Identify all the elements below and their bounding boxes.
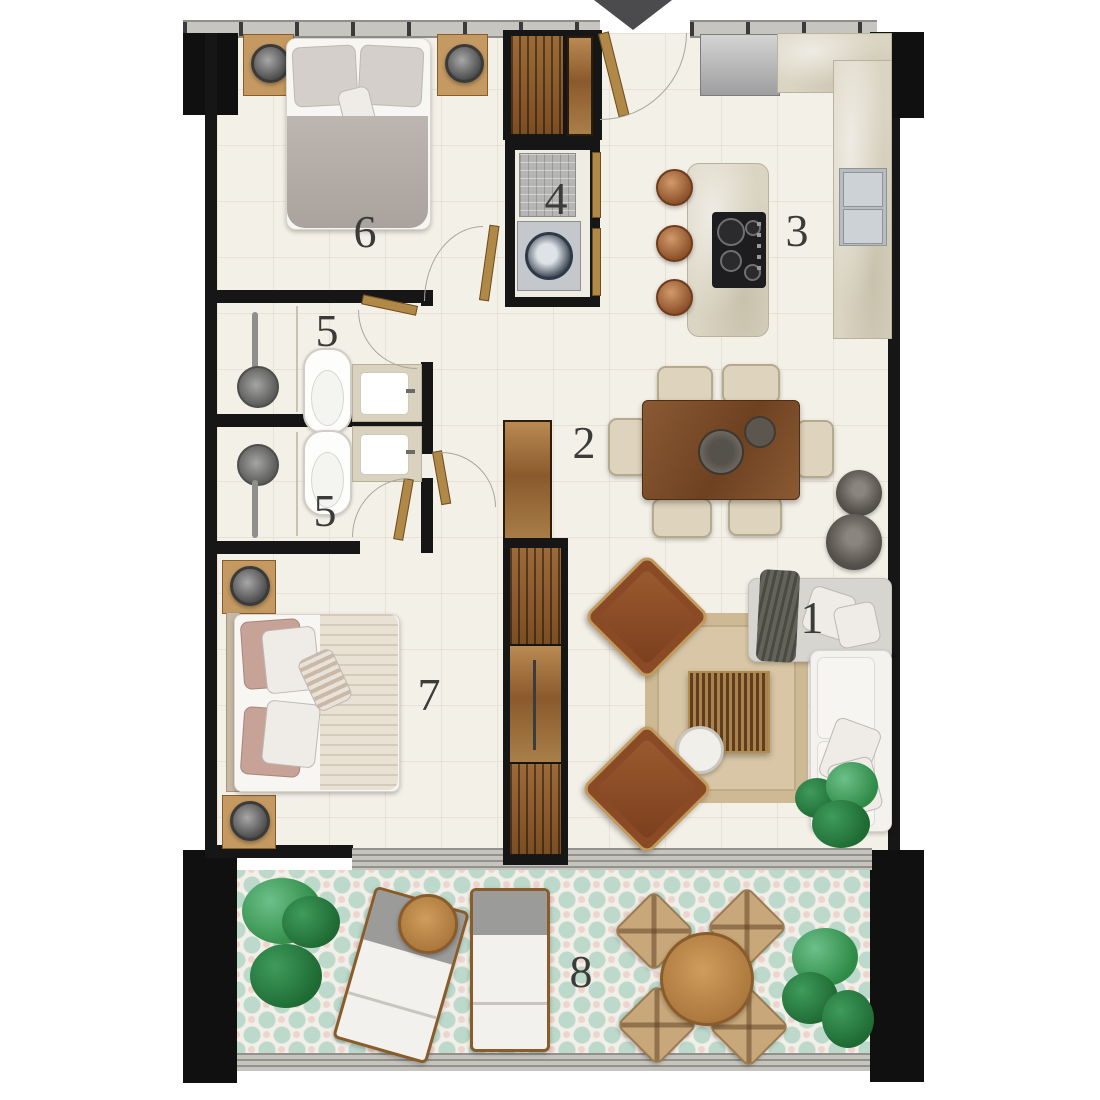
room-label-terrace: 8 — [570, 949, 593, 995]
lounger-headrest — [473, 891, 547, 935]
wall-bath-right-lower — [421, 478, 433, 553]
shower-partition — [296, 306, 298, 412]
burner-icon — [717, 218, 745, 246]
wardrobe-handle — [533, 660, 536, 750]
lounger-fold — [473, 1002, 547, 1005]
lamp-icon — [251, 44, 290, 83]
wall-bedroom7-top — [205, 541, 360, 554]
room-label-hall: 2 — [573, 420, 596, 466]
sink-basin-2 — [843, 209, 883, 244]
sun-lounger — [470, 888, 550, 1052]
room-label-living: 1 — [801, 595, 824, 641]
burner-icon — [720, 250, 742, 272]
shower-rail — [252, 312, 258, 370]
lamp-icon — [230, 801, 270, 841]
wardrobe-hanging-top — [510, 548, 561, 644]
dining-chair — [728, 496, 782, 536]
entry-closet-hanging — [511, 36, 563, 134]
vanity — [352, 426, 422, 482]
shower-rail — [252, 480, 258, 538]
washer-door — [525, 232, 573, 280]
dining-chair — [796, 420, 834, 478]
wardrobe-hanging-bottom — [510, 764, 561, 854]
dining-table — [642, 400, 800, 500]
wall-left — [205, 33, 217, 853]
centerpiece-bowl — [698, 429, 744, 475]
floor-plan: 1 2 3 4 5 5 6 7 8 — [0, 0, 1100, 1100]
centerpiece-plate — [744, 416, 776, 448]
bar-stool — [656, 169, 693, 206]
wall-bath-right-upper — [421, 362, 433, 454]
laundry-slider-1 — [592, 152, 601, 218]
laundry-slider-2 — [592, 228, 601, 296]
terrace-rail — [237, 1053, 870, 1071]
toilet-bowl — [311, 370, 344, 426]
bar-stool — [656, 279, 693, 316]
room-label-bedroom-lower: 7 — [418, 672, 441, 718]
room-label-laundry: 4 — [545, 176, 568, 222]
room-label-kitchen: 3 — [786, 208, 809, 254]
shower-head-icon — [237, 366, 279, 408]
pouf — [826, 514, 882, 570]
lounger-fold — [348, 992, 437, 1020]
dining-chair — [652, 498, 712, 538]
basin — [360, 372, 409, 415]
bar-stool — [656, 225, 693, 262]
cooktop-controls — [757, 222, 761, 276]
sink-basin-1 — [843, 172, 883, 207]
lamp-icon — [230, 566, 270, 606]
plant — [250, 944, 322, 1008]
faucet-icon — [406, 389, 415, 393]
faucet-icon — [406, 450, 415, 454]
plant — [812, 800, 870, 848]
cooktop — [712, 212, 766, 288]
kitchen-sink — [839, 168, 887, 246]
shower-head-icon — [237, 444, 279, 486]
terrace-dining-table — [660, 932, 754, 1026]
column-bottom-right — [870, 850, 924, 1082]
plant — [282, 896, 340, 948]
dining-chair — [722, 364, 780, 404]
sofa-pillow — [832, 600, 882, 650]
shower-partition — [296, 432, 298, 536]
washer — [517, 221, 581, 291]
hall-console — [503, 420, 552, 544]
entrance-arrow-icon — [594, 0, 672, 30]
wall-bedroom6-bath — [210, 290, 433, 303]
sliding-door-terrace — [352, 848, 872, 870]
pouf — [836, 470, 882, 516]
terrace-side-table — [398, 894, 458, 954]
room-label-bath-lower: 5 — [314, 488, 337, 534]
column-bottom-left — [183, 850, 237, 1083]
toilet — [303, 348, 352, 434]
throw-blanket — [756, 569, 801, 663]
basin — [360, 434, 409, 475]
plant — [822, 990, 874, 1048]
pillow — [261, 699, 321, 768]
fridge — [700, 34, 780, 96]
lamp-icon — [445, 44, 484, 83]
vanity — [352, 364, 422, 422]
room-label-bedroom-upper: 6 — [354, 209, 377, 255]
entry-closet-panel — [567, 36, 593, 136]
room-label-bath-upper: 5 — [316, 308, 339, 354]
